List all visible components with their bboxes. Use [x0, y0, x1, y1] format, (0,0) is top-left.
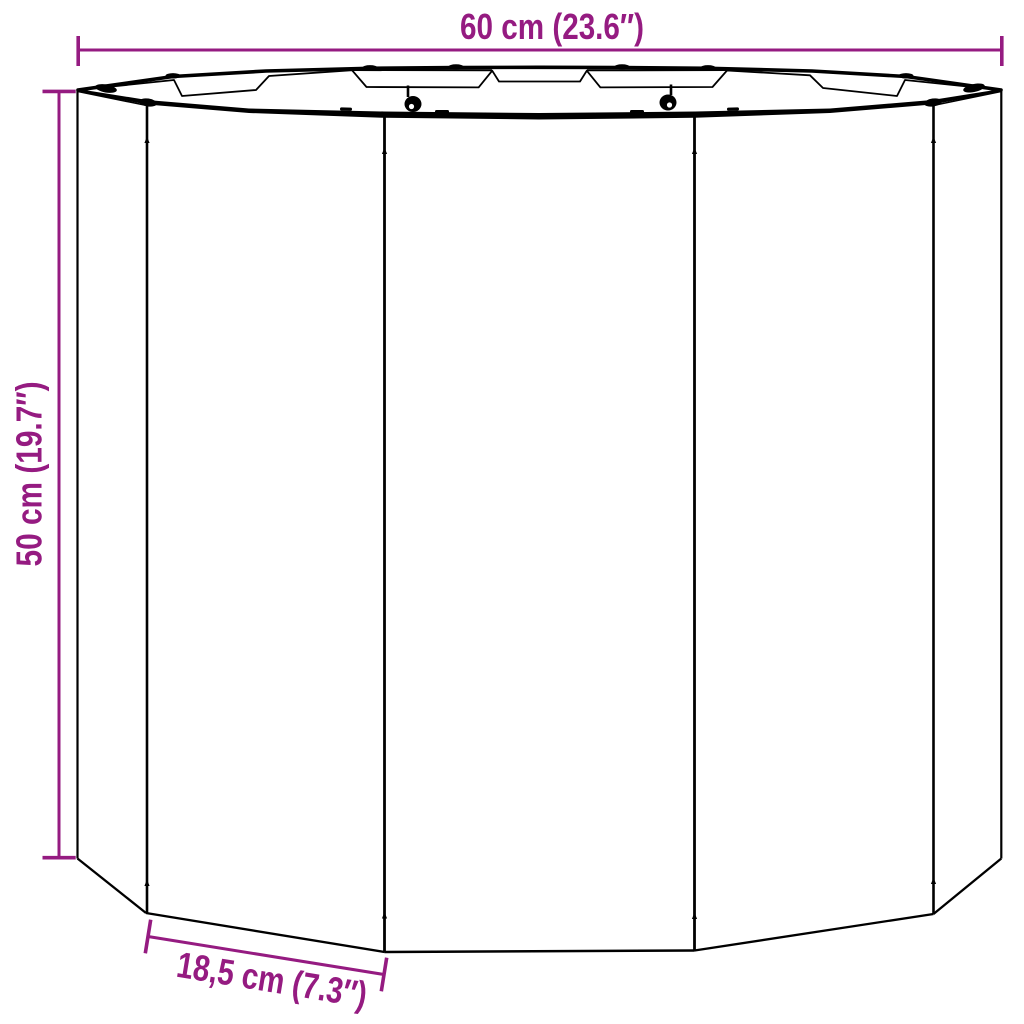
svg-text:60 cm (23.6″): 60 cm (23.6″) — [460, 6, 644, 47]
svg-text:50 cm (19.7″): 50 cm (19.7″) — [9, 382, 50, 567]
